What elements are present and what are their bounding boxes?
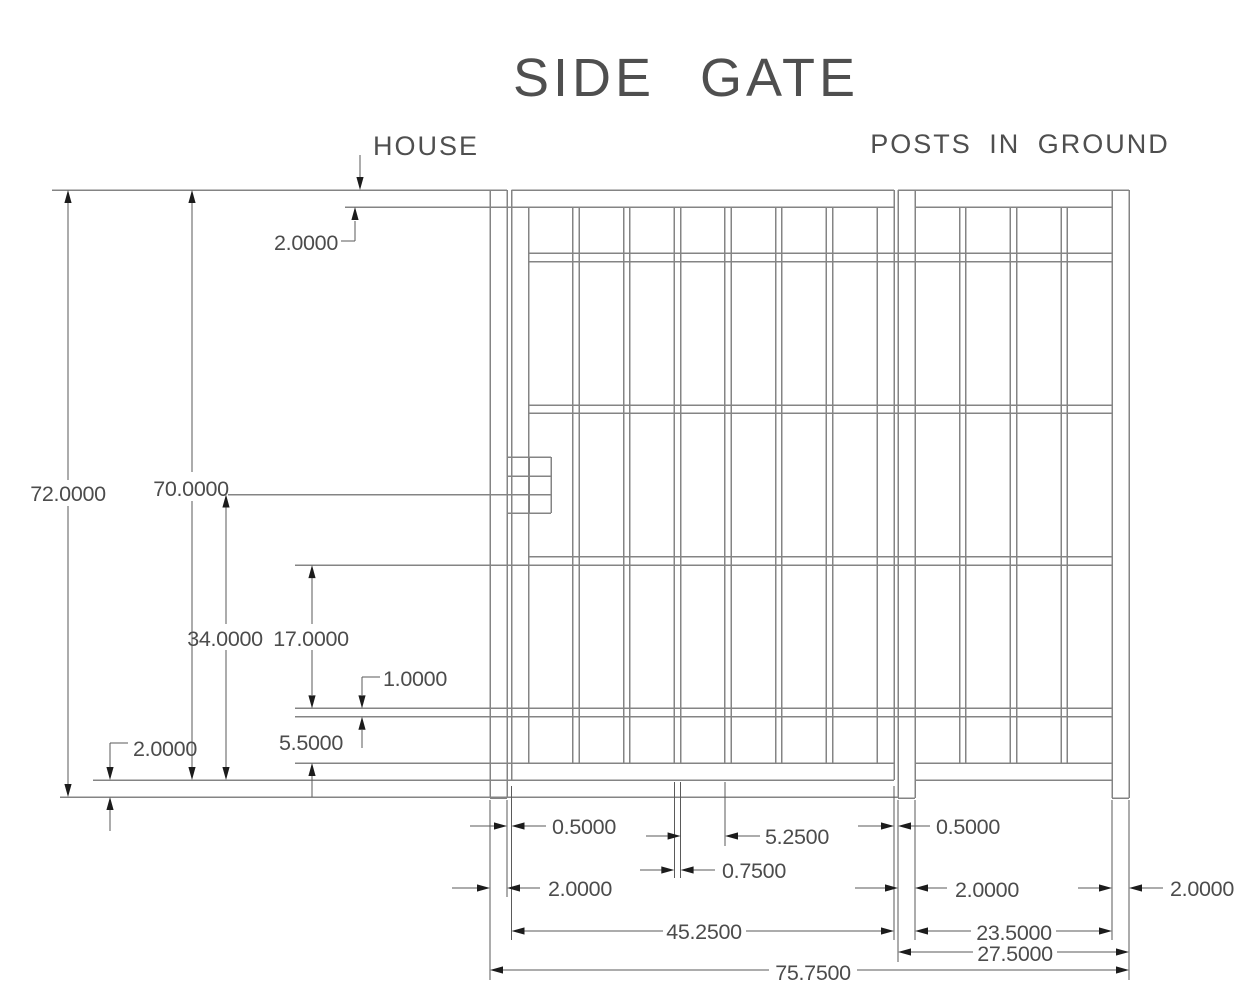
arrowhead-l bbox=[725, 832, 738, 839]
arrowhead-d bbox=[106, 767, 113, 780]
dim-hinge-to-bottom: 34.0000 bbox=[187, 627, 263, 651]
dim-gate-width: 45.2500 bbox=[666, 920, 742, 944]
dim-bar-width: 0.7500 bbox=[722, 859, 786, 883]
arrowhead-u bbox=[351, 207, 358, 220]
dim-top-rail: 2.0000 bbox=[274, 231, 338, 255]
arrowhead-l bbox=[1129, 884, 1142, 891]
arrowhead-r bbox=[881, 822, 894, 829]
arrowhead-d bbox=[308, 695, 315, 708]
arrowhead-r bbox=[1099, 884, 1112, 891]
dim-overall-height: 72.0000 bbox=[30, 482, 106, 506]
dim-end-post: 2.0000 bbox=[1170, 877, 1234, 901]
arrowhead-r bbox=[661, 866, 674, 873]
arrowhead-d bbox=[188, 767, 195, 780]
dim-hinge-post: 2.0000 bbox=[548, 877, 612, 901]
arrowhead-r bbox=[1099, 927, 1112, 934]
house-label: HOUSE bbox=[373, 131, 479, 161]
dim-rail-gap: 17.0000 bbox=[273, 627, 349, 651]
arrowhead-l bbox=[915, 927, 928, 934]
side-gate-drawing: SIDE GATE HOUSE POSTS IN GROUND 72.0000 … bbox=[0, 0, 1250, 1000]
arrowhead-r bbox=[1116, 966, 1129, 973]
arrowhead-l bbox=[490, 966, 503, 973]
arrowhead-r bbox=[494, 822, 507, 829]
arrowhead-d bbox=[64, 784, 71, 797]
arrowhead-r bbox=[881, 927, 894, 934]
dim-bar-gap: 5.2500 bbox=[765, 825, 829, 849]
arrowhead-l bbox=[898, 822, 911, 829]
dim-ground-clearance: 2.0000 bbox=[133, 737, 197, 761]
arrowhead-l bbox=[915, 884, 928, 891]
arrowhead-d bbox=[358, 695, 365, 708]
dim-latch-gap: 0.5000 bbox=[936, 815, 1000, 839]
arrowhead-r bbox=[1116, 948, 1129, 955]
arrowhead-u bbox=[358, 717, 365, 730]
drawing-title: SIDE GATE bbox=[513, 48, 859, 108]
arrowhead-d bbox=[222, 767, 229, 780]
arrowhead-l bbox=[512, 927, 525, 934]
gate-bars bbox=[573, 207, 1068, 763]
dim-latch-post: 2.0000 bbox=[955, 878, 1019, 902]
dim-rail-thickness: 1.0000 bbox=[383, 667, 447, 691]
arrowhead-u bbox=[64, 190, 71, 203]
dim-bottom-gap: 5.5000 bbox=[279, 731, 343, 755]
arrowhead-u bbox=[188, 190, 195, 203]
dim-panel-outer: 27.5000 bbox=[977, 942, 1053, 966]
dim-hinge-gap: 0.5000 bbox=[552, 815, 616, 839]
arrowhead-u bbox=[308, 763, 315, 776]
cad-canvas: SIDE GATE HOUSE POSTS IN GROUND 72.0000 … bbox=[0, 0, 1250, 1000]
arrowhead-d bbox=[356, 177, 363, 190]
arrowhead-u bbox=[106, 797, 113, 810]
arrowhead-l bbox=[507, 884, 520, 891]
arrowhead-r bbox=[885, 884, 898, 891]
dimension-lines bbox=[68, 155, 1163, 980]
arrowhead-l bbox=[898, 948, 911, 955]
arrowhead-l bbox=[681, 866, 694, 873]
text-layer: SIDE GATE HOUSE POSTS IN GROUND 72.0000 … bbox=[30, 48, 1234, 985]
posts-in-ground-label: POSTS IN GROUND bbox=[870, 129, 1170, 159]
dim-gate-height: 70.0000 bbox=[153, 477, 229, 501]
dim-overall-width: 75.7500 bbox=[775, 961, 851, 985]
arrowhead-u bbox=[308, 565, 315, 578]
arrowhead-l bbox=[512, 822, 525, 829]
arrowhead-r bbox=[477, 884, 490, 891]
